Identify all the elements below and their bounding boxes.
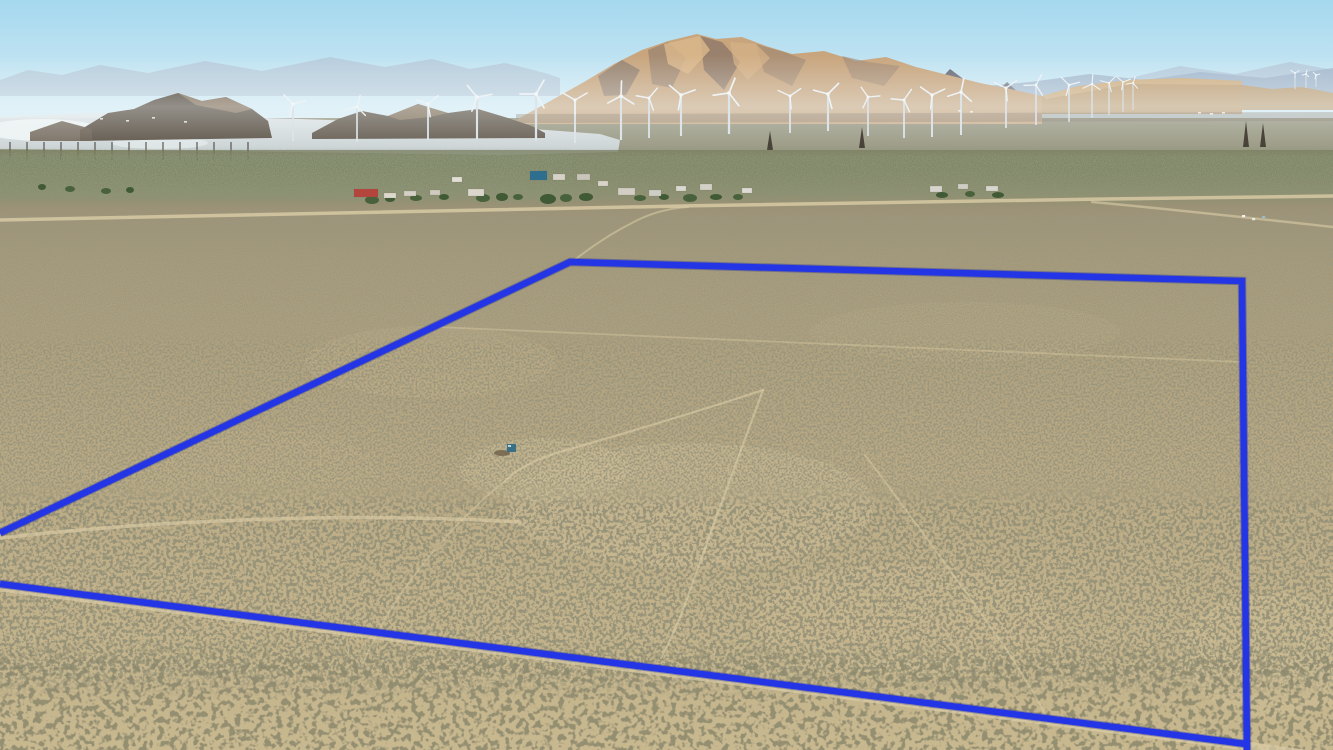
tree [38, 184, 46, 190]
tree [540, 194, 556, 204]
turbine-hub [1294, 72, 1296, 74]
tree [683, 194, 697, 202]
turbine-hub [930, 93, 933, 96]
turbine-hub [534, 92, 538, 96]
tree [579, 193, 593, 201]
distant-building-speck [1222, 112, 1225, 114]
turbine-hub [867, 96, 870, 99]
tree [710, 194, 722, 200]
turbine-hub [1122, 81, 1124, 83]
tree [733, 194, 743, 200]
distant-building-speck [184, 121, 187, 123]
settlement-building [700, 184, 712, 190]
turbine-hub [1108, 82, 1110, 84]
settlement-building [649, 190, 661, 196]
turbine-hub [356, 106, 359, 109]
settlement-building [468, 189, 484, 196]
vehicle-speck [1262, 216, 1265, 218]
aerial-photo-scene [0, 0, 1333, 750]
turbine-hub [1132, 82, 1134, 84]
settlement-building [452, 177, 462, 182]
settlement-building [676, 186, 686, 191]
tree [965, 191, 975, 197]
settlement-building [986, 186, 998, 191]
settlement-building [598, 181, 608, 186]
vehicle-speck [1252, 218, 1255, 220]
tree [513, 194, 523, 200]
aerial-photo-of-desert-parcel [0, 0, 1333, 750]
tree [65, 186, 75, 192]
distant-building-speck [958, 110, 961, 112]
settlement-building [958, 184, 968, 189]
turbine-hub [1091, 83, 1093, 85]
tree [101, 188, 111, 194]
turbine-hub [291, 102, 294, 105]
turbine-hub [826, 92, 830, 96]
distant-building-speck [126, 120, 129, 122]
turbine-hub [727, 91, 731, 95]
tree [560, 194, 572, 202]
turbine-hub [647, 96, 650, 99]
distant-building-speck [970, 111, 973, 113]
distant-building-speck [1198, 112, 1201, 114]
settlement-building [354, 189, 378, 197]
turbine-hub [1315, 74, 1317, 76]
distant-building-speck [100, 118, 103, 120]
distant-building-speck [74, 122, 77, 124]
settlement-building [577, 174, 590, 180]
tree [992, 192, 1004, 198]
tree [439, 194, 449, 200]
turbine-hub [902, 98, 905, 101]
turbine-hub [1305, 73, 1307, 75]
distant-building-speck [152, 117, 155, 119]
turbine-hub [959, 90, 962, 93]
turbine-blade [621, 81, 622, 96]
turbine-hub [788, 94, 791, 97]
turbine-hub [1004, 86, 1007, 89]
settlement-building [930, 186, 942, 192]
vehicle-speck [1242, 215, 1245, 217]
turbine-hub [475, 95, 479, 99]
turbine-hub [573, 98, 576, 101]
settlement-building [530, 171, 547, 180]
settlement-building [742, 188, 752, 193]
turbine-hub [1068, 84, 1071, 87]
distant-building-speck [1210, 113, 1213, 115]
tree [496, 193, 508, 201]
settlement-building [553, 174, 565, 180]
tree [936, 192, 948, 198]
settlement-building [430, 190, 440, 195]
turbine-hub [426, 102, 429, 105]
structure-highlight [508, 445, 511, 447]
settlement-building [404, 191, 416, 196]
turbine-hub [619, 94, 623, 98]
scrub-texture-dense [0, 150, 520, 202]
turbine-hub [679, 93, 683, 97]
settlement-building [384, 193, 396, 198]
turbine-hub [1035, 84, 1038, 87]
tree [126, 187, 134, 193]
settlement-building [618, 188, 635, 195]
tree [634, 195, 646, 201]
